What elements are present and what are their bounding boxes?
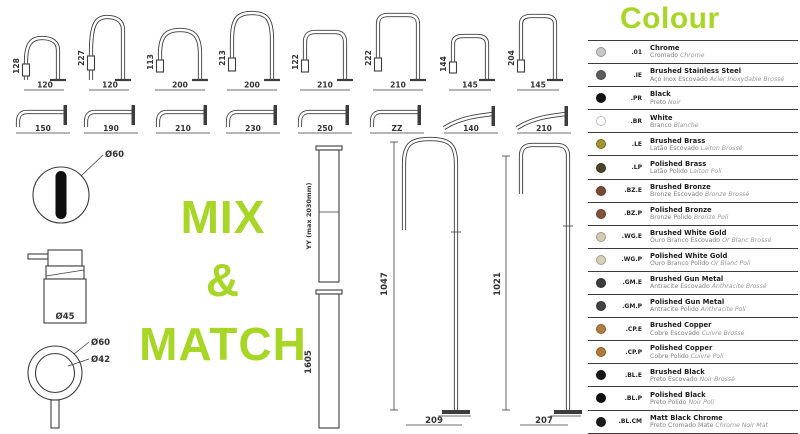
top-spout-1-drawing: 120128 xyxy=(12,8,78,100)
colour-row: .LPPolished BrassLatão Polido Laiton Pol… xyxy=(588,156,798,179)
colour-subtitle: Antracite Polido Anthracite Poli xyxy=(650,306,796,313)
colour-names: WhiteBranco Blanche xyxy=(650,114,796,130)
colour-rows: .01ChromeCromado Chrome.IEBrushed Stainl… xyxy=(588,40,798,434)
colour-subtitle-pt: Aço Inox Escovado xyxy=(650,76,708,83)
pipe-outline xyxy=(232,13,272,80)
colour-swatch xyxy=(596,163,606,173)
base-dim-label: 209 xyxy=(425,416,443,426)
height-dim-label: 1021 xyxy=(493,272,503,296)
pipe-outline xyxy=(404,139,456,410)
wall-spout-5-drawing: 250 xyxy=(290,102,360,138)
colour-swatch xyxy=(596,278,606,288)
colour-swatch xyxy=(596,417,606,427)
colour-row: .IEBrushed Stainless SteelAço Inox Escov… xyxy=(588,64,798,87)
colour-names: Brushed Stainless SteelAço Inox Escovado… xyxy=(650,67,796,83)
colour-subtitle-fr: Acier Inoxydable Brossé xyxy=(710,76,785,83)
colour-name: Chrome xyxy=(650,44,796,52)
colour-subtitle-pt: Preto xyxy=(650,99,666,106)
colour-subtitle: Preto Polido Noir Poli xyxy=(650,399,796,406)
colour-swatch xyxy=(596,393,606,403)
colour-code: .BR xyxy=(606,118,642,125)
width-dim-label: 190 xyxy=(103,124,119,133)
width-dim-label: 210 xyxy=(390,81,406,90)
colour-code: .BZ.P xyxy=(606,210,642,217)
colour-subtitle-pt: Preto Polido xyxy=(650,399,686,406)
colour-name: Brushed Copper xyxy=(650,321,796,329)
height-dim-label: 222 xyxy=(364,50,373,66)
mix-line: MIX xyxy=(128,186,318,249)
colour-subtitle-pt: Antracite Polido xyxy=(650,306,699,313)
colour-subtitle-pt: Preto Cromado Mate xyxy=(650,422,713,429)
pipe-connector xyxy=(518,60,525,72)
colour-subtitle-pt: Ouro Branco Escovado xyxy=(650,237,720,244)
colour-code: .WG.P xyxy=(606,256,642,263)
colour-subtitle: Preto Noir xyxy=(650,99,796,106)
wall-spout-3-drawing: 210 xyxy=(148,102,218,138)
pipe-inner xyxy=(232,13,272,80)
wall-flange xyxy=(274,105,278,125)
pipe-inner xyxy=(404,139,456,410)
pipe-inner xyxy=(378,15,418,80)
pipe-outline xyxy=(378,15,418,80)
colour-swatch xyxy=(596,93,606,103)
colour-name: Brushed Stainless Steel xyxy=(650,67,796,75)
pipe-outline xyxy=(91,17,123,80)
colour-code: .BL.E xyxy=(606,372,642,379)
colour-subtitle-pt: Latão Escovado xyxy=(650,145,699,152)
pipe-connector xyxy=(157,60,164,72)
wall-flange xyxy=(132,105,136,125)
colour-subtitle: Preto Escovado Noir Brossé xyxy=(650,376,796,383)
pipe-outline xyxy=(453,36,487,80)
colour-code: .LP xyxy=(606,164,642,171)
wall-flange xyxy=(204,105,208,125)
colour-row: .BRWhiteBranco Blanche xyxy=(588,110,798,133)
colour-row: .WG.PPolished White GoldOuro Branco Poli… xyxy=(588,249,798,272)
colour-swatch xyxy=(596,70,606,80)
colour-name: Polished Bronze xyxy=(650,206,796,214)
colour-code: .01 xyxy=(606,49,642,56)
colour-subtitle-pt: Latão Polido xyxy=(650,168,688,175)
pipe-outline xyxy=(160,30,200,80)
colour-swatch xyxy=(596,324,606,334)
colour-swatch xyxy=(596,186,606,196)
ampersand-line: & xyxy=(128,249,318,312)
colour-swatch xyxy=(596,370,606,380)
colour-name: Polished White Gold xyxy=(650,252,796,260)
pipe-inner xyxy=(453,36,487,80)
colour-subtitle-fr: Noir xyxy=(668,99,681,106)
pipe-outline xyxy=(26,38,58,80)
colour-name: Polished Black xyxy=(650,391,796,399)
colour-code: .BL.P xyxy=(606,395,642,402)
colour-names: Matt Black ChromePreto Cromado Mate Chro… xyxy=(650,414,796,430)
colour-subtitle: Preto Cromado Mate Chrome Noir Mat xyxy=(650,422,796,429)
colour-swatch xyxy=(596,255,606,265)
colour-code: .GM.P xyxy=(606,303,642,310)
wall-spout-6-drawing: ZZ xyxy=(362,102,432,138)
knob-outer-diameter-label: Ø60 xyxy=(91,337,110,348)
riser-flange xyxy=(316,146,342,150)
wall-spout-2-drawing: 190 xyxy=(76,102,146,138)
colour-swatch xyxy=(596,209,606,219)
colour-names: ChromeCromado Chrome xyxy=(650,44,796,60)
knob-inner-circle xyxy=(36,354,75,393)
colour-swatch xyxy=(596,301,606,311)
sensor-diameter-label: Ø60 xyxy=(105,149,124,160)
colour-row: .BL.CMMatt Black ChromePreto Cromado Mat… xyxy=(588,411,798,434)
colour-row: .PRBlackPreto Noir xyxy=(588,87,798,110)
mix-and-match-heading: MIX & MATCH xyxy=(128,186,318,376)
dispenser-collar xyxy=(46,266,84,279)
knob-stem xyxy=(51,400,59,428)
colour-subtitle-pt: Bronze Polido xyxy=(650,214,692,221)
colour-row: .GM.EBrushed Gun MetalAntracite Escovado… xyxy=(588,272,798,295)
pipe-inner xyxy=(160,30,200,80)
colour-subtitle-fr: Blanche xyxy=(674,122,699,129)
colour-subtitle-pt: Cobre Escovado xyxy=(650,330,700,337)
colour-subtitle-fr: Noir Poli xyxy=(688,399,714,406)
colour-names: Polished BrassLatão Polido Laiton Poli xyxy=(650,160,796,176)
dispenser-diameter-label: Ø45 xyxy=(55,311,74,322)
colour-name: Brushed Bronze xyxy=(650,183,796,191)
colour-code: .BL.CM xyxy=(606,418,642,425)
riser-body xyxy=(319,150,339,282)
top-spout-8-drawing: 145204 xyxy=(505,8,571,100)
colour-subtitle-fr: Chrome Noir Mat xyxy=(715,422,768,429)
leader-line-outer xyxy=(74,342,89,354)
colour-name: Black xyxy=(650,90,796,98)
top-spout-5-drawing: 210122 xyxy=(292,8,358,100)
width-dim-label: 120 xyxy=(102,81,118,90)
colour-names: Brushed CopperCobre Escovado Cuivre Bros… xyxy=(650,321,796,337)
colour-code: .PR xyxy=(606,95,642,102)
colour-subtitle-fr: Noir Brossé xyxy=(699,376,734,383)
colour-swatch xyxy=(596,116,606,126)
height-dim-label: 122 xyxy=(291,54,300,70)
colour-code: .IE xyxy=(606,72,642,79)
height-dim-label: 144 xyxy=(439,56,448,72)
colour-subtitle: Bronze Polido Bronze Poli xyxy=(650,214,796,221)
colour-code: .CP.E xyxy=(606,326,642,333)
pipe-inner xyxy=(521,16,555,80)
floor-spout-2-drawing: 207 1021 xyxy=(490,134,582,434)
wall-flange xyxy=(346,105,350,125)
colour-subtitle-pt: Antracite Escovado xyxy=(650,283,710,290)
colour-names: Brushed White GoldOuro Branco Escovado O… xyxy=(650,229,796,245)
colour-name: Polished Brass xyxy=(650,160,796,168)
knob-inner-diameter-label: Ø42 xyxy=(91,354,110,365)
leader-line xyxy=(81,155,103,176)
width-dim-label: 200 xyxy=(244,81,260,90)
top-spout-2-drawing: 120227 xyxy=(77,8,143,100)
height-dim-label: 227 xyxy=(77,50,86,66)
colour-names: BlackPreto Noir xyxy=(650,90,796,106)
colour-subtitle: Latão Escovado Laiton Brossé xyxy=(650,145,796,152)
colour-subtitle-pt: Ouro Branco Polido xyxy=(650,260,709,267)
colour-names: Polished White GoldOuro Branco Polido Or… xyxy=(650,252,796,268)
colour-names: Brushed BrassLatão Escovado Laiton Bross… xyxy=(650,137,796,153)
colour-subtitle: Ouro Branco Escovado Or Blanc Brossé xyxy=(650,237,796,244)
height-dim-label: 1047 xyxy=(380,272,390,296)
wall-spout-7-drawing: 140 xyxy=(436,102,506,138)
pipe-inner xyxy=(521,145,568,410)
colour-code: .CP.P xyxy=(606,349,642,356)
colour-subtitle-pt: Bronze Escovado xyxy=(650,191,703,198)
pipe-inner xyxy=(305,32,345,80)
colour-row: .BZ.EBrushed BronzeBronze Escovado Bronz… xyxy=(588,180,798,203)
colour-name: Matt Black Chrome xyxy=(650,414,796,422)
colour-subtitle-fr: Laiton Brossé xyxy=(701,145,743,152)
colour-code: .LE xyxy=(606,141,642,148)
colour-row: .GM.PPolished Gun MetalAntracite Polido … xyxy=(588,295,798,318)
colour-row: .BL.PPolished BlackPreto Polido Noir Pol… xyxy=(588,387,798,410)
colour-code: .GM.E xyxy=(606,279,642,286)
colour-subtitle-fr: Or Blanc Brossé xyxy=(722,237,771,244)
wall-flange xyxy=(64,105,68,125)
colour-names: Polished Gun MetalAntracite Polido Anthr… xyxy=(650,298,796,314)
colour-row: .LEBrushed BrassLatão Escovado Laiton Br… xyxy=(588,133,798,156)
colour-name: White xyxy=(650,114,796,122)
colour-subtitle: Latão Polido Laiton Poli xyxy=(650,168,796,175)
wall-spout-4-drawing: 230 xyxy=(218,102,288,138)
colour-swatch xyxy=(596,347,606,357)
top-spout-6-drawing: 210222 xyxy=(365,8,431,100)
colour-row: .CP.EBrushed CopperCobre Escovado Cuivre… xyxy=(588,318,798,341)
colour-names: Polished BronzeBronze Polido Bronze Poli xyxy=(650,206,796,222)
colour-subtitle-pt: Cobre Polido xyxy=(650,353,689,360)
pipe-connector xyxy=(302,60,309,72)
colour-subtitle: Aço Inox Escovado Acier Inoxydable Bross… xyxy=(650,76,796,83)
colour-code: .WG.E xyxy=(606,233,642,240)
height-dim-label: 113 xyxy=(146,54,155,70)
width-dim-label: 140 xyxy=(463,124,479,133)
pipe-outline xyxy=(305,32,345,80)
base-plate xyxy=(442,410,470,414)
wall-flange xyxy=(565,106,569,126)
colour-swatch xyxy=(596,232,606,242)
colour-subtitle-pt: Preto Escovado xyxy=(650,376,698,383)
width-dim-label: 145 xyxy=(530,81,546,90)
width-dim-label: 250 xyxy=(317,124,333,133)
pipe-connector xyxy=(23,64,30,76)
colour-row: .BZ.PPolished BronzeBronze Polido Bronze… xyxy=(588,203,798,226)
width-dim-label: 230 xyxy=(245,124,261,133)
colour-row: .01ChromeCromado Chrome xyxy=(588,41,798,64)
colour-names: Brushed BronzeBronze Escovado Bronze Bro… xyxy=(650,183,796,199)
pipe-connector xyxy=(375,58,382,71)
height-dim-label: 213 xyxy=(218,50,227,66)
colour-names: Polished CopperCobre Polido Cuivre Poli xyxy=(650,344,796,360)
colour-subtitle: Ouro Branco Polido Or Blanc Poli xyxy=(650,260,796,267)
sensor-slot xyxy=(56,171,67,219)
colour-subtitle-fr: Cuivre Brossé xyxy=(702,330,745,337)
colour-subtitle: Cobre Escovado Cuivre Brossé xyxy=(650,330,796,337)
colour-subtitle-fr: Cuivre Poli xyxy=(691,353,724,360)
colour-row: .CP.PPolished CopperCobre Polido Cuivre … xyxy=(588,341,798,364)
wall-spout-1-drawing: 150 xyxy=(8,102,78,138)
width-dim-label: 145 xyxy=(462,81,478,90)
colour-name: Polished Copper xyxy=(650,344,796,352)
colour-subtitle: Antracite Escovado Anthracite Brossé xyxy=(650,283,796,290)
width-dim-label: 120 xyxy=(37,81,53,90)
colour-name: Brushed Black xyxy=(650,368,796,376)
colour-panel-title: Colour xyxy=(620,2,798,36)
colour-swatch xyxy=(596,47,606,57)
match-line: MATCH xyxy=(128,313,318,376)
colour-names: Brushed BlackPreto Escovado Noir Brossé xyxy=(650,368,796,384)
colour-code: .BZ.E xyxy=(606,187,642,194)
width-dim-label: 210 xyxy=(317,81,333,90)
colour-subtitle-fr: Bronze Poli xyxy=(694,214,728,221)
colour-subtitle-fr: Or Blanc Poli xyxy=(711,260,750,267)
spec-sheet: 1201281202272001132002132101222102221451… xyxy=(0,0,800,434)
top-spout-4-drawing: 200213 xyxy=(219,8,285,100)
wall-flange xyxy=(492,106,496,126)
colour-subtitle: Branco Blanche xyxy=(650,122,796,129)
pipe-connector xyxy=(88,56,95,70)
base-plate xyxy=(554,410,582,414)
top-spout-7-drawing: 145144 xyxy=(437,8,503,100)
colour-names: Polished BlackPreto Polido Noir Poli xyxy=(650,391,796,407)
riser-flange xyxy=(316,290,342,294)
wall-flange xyxy=(418,105,422,125)
riser-body xyxy=(319,294,339,428)
dispenser-side-view-drawing: Ø45 xyxy=(18,246,133,334)
knob-top-view-drawing: Ø60 Ø42 xyxy=(18,328,133,434)
colour-panel: Colour .01ChromeCromado Chrome.IEBrushed… xyxy=(588,0,798,434)
colour-subtitle-fr: Anthracite Brossé xyxy=(712,283,767,290)
pipe-outline xyxy=(521,145,568,410)
colour-subtitle-pt: Cromado xyxy=(650,52,678,59)
colour-name: Brushed White Gold xyxy=(650,229,796,237)
colour-swatch xyxy=(596,139,606,149)
pipe-connector xyxy=(450,62,457,73)
colour-subtitle-fr: Bronze Brossé xyxy=(705,191,749,198)
colour-subtitle-fr: Chrome xyxy=(680,52,704,59)
sensor-top-view-drawing: Ø60 xyxy=(18,142,133,250)
colour-subtitle: Bronze Escovado Bronze Brossé xyxy=(650,191,796,198)
width-dim-label: 210 xyxy=(536,124,552,133)
pipe-connector xyxy=(229,58,236,71)
wall-spout-8-drawing: 210 xyxy=(509,102,579,138)
colour-names: Brushed Gun MetalAntracite Escovado Anth… xyxy=(650,275,796,291)
width-dim-label: ZZ xyxy=(392,124,403,133)
top-spout-3-drawing: 200113 xyxy=(147,8,213,100)
dispenser-nozzle xyxy=(28,254,48,259)
floor-spout-1-drawing: 209 1047 xyxy=(380,134,472,434)
width-dim-label: 150 xyxy=(35,124,51,133)
pipe-outline xyxy=(521,16,555,80)
width-dim-label: 200 xyxy=(172,81,188,90)
height-dim-label: 204 xyxy=(507,50,516,66)
dispenser-head xyxy=(48,250,82,266)
colour-subtitle-pt: Branco xyxy=(650,122,672,129)
colour-subtitle: Cromado Chrome xyxy=(650,52,796,59)
colour-subtitle-fr: Anthracite Poli xyxy=(701,306,746,313)
base-dim-label: 207 xyxy=(535,416,553,426)
colour-row: .WG.EBrushed White GoldOuro Branco Escov… xyxy=(588,226,798,249)
colour-row: .BL.EBrushed BlackPreto Escovado Noir Br… xyxy=(588,364,798,387)
colour-subtitle-fr: Laiton Poli xyxy=(690,168,722,175)
colour-subtitle: Cobre Polido Cuivre Poli xyxy=(650,353,796,360)
colour-name: Brushed Brass xyxy=(650,137,796,145)
height-dim-label: 128 xyxy=(12,58,21,74)
width-dim-label: 210 xyxy=(175,124,191,133)
